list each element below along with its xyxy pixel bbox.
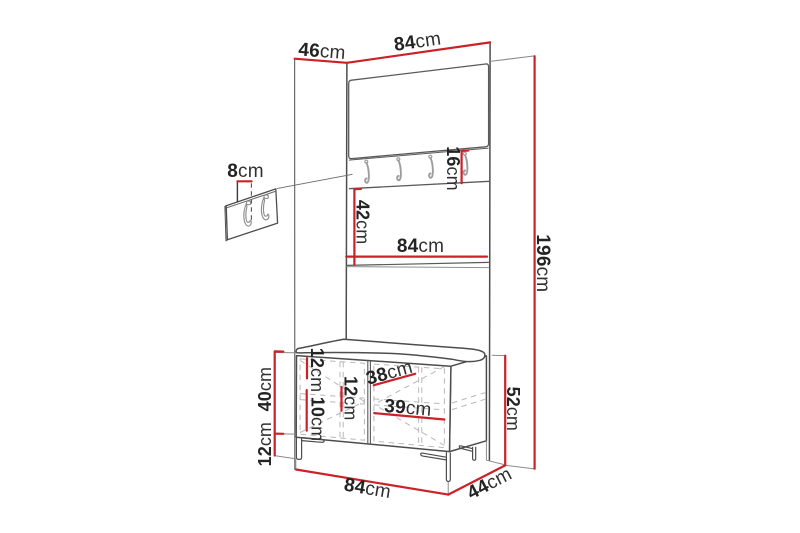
svg-text:84cm: 84cm [397,235,444,256]
svg-text:12cm: 12cm [341,376,361,420]
svg-text:84cm: 84cm [342,474,392,503]
svg-text:44cm: 44cm [464,463,516,503]
svg-text:196cm: 196cm [532,234,553,292]
svg-text:52cm: 52cm [503,387,523,431]
svg-text:42cm: 42cm [353,200,373,244]
svg-text:8cm: 8cm [227,161,264,182]
svg-text:40cm: 40cm [255,367,275,411]
svg-text:46cm: 46cm [298,39,347,64]
svg-text:16cm: 16cm [443,146,463,190]
svg-text:12cm: 12cm [255,422,275,466]
svg-text:10cm: 10cm [307,397,327,441]
svg-text:39cm: 39cm [384,395,433,420]
svg-text:12cm: 12cm [307,348,327,392]
